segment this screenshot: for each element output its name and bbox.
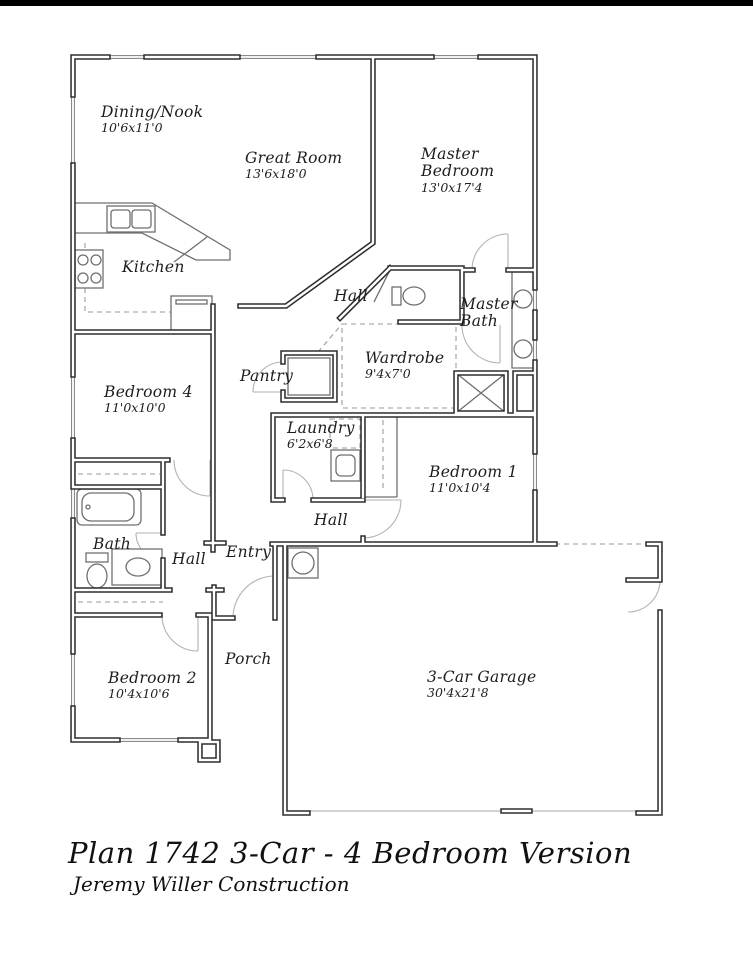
room-label-bedroom4: Bedroom 4 11'0x10'0 bbox=[104, 384, 193, 415]
garage-side-door-arc bbox=[628, 580, 660, 612]
builder-name: Jeremy Willer Construction bbox=[73, 872, 350, 896]
pantry-shelves bbox=[288, 358, 330, 395]
thin-detail-lines bbox=[73, 203, 535, 497]
water-heater bbox=[288, 548, 318, 578]
bedroom1-closet-lines bbox=[363, 415, 397, 497]
room-label-porch: Porch bbox=[225, 651, 272, 668]
room-label-bath: Bath bbox=[93, 536, 131, 553]
floor-plan-drawing bbox=[0, 0, 753, 978]
master-bedroom-door-arc bbox=[472, 234, 508, 270]
laundry-door-arc bbox=[283, 470, 313, 500]
stove bbox=[75, 250, 103, 288]
dishwasher-counter bbox=[171, 296, 212, 332]
bathtub bbox=[77, 489, 141, 525]
shower-x-mark bbox=[456, 373, 506, 413]
room-label-hall-middle: Hall bbox=[172, 551, 206, 568]
room-label-great-room: Great Room 13'6x18'0 bbox=[245, 150, 342, 181]
bedroom4-door-arc bbox=[174, 460, 210, 496]
front-door-arc bbox=[233, 576, 275, 618]
room-label-garage: 3-Car Garage 30'4x21'8 bbox=[427, 669, 537, 700]
bedroom1-door-arc bbox=[363, 500, 401, 538]
room-label-entry: Entry bbox=[226, 544, 271, 561]
floor-plan-page: Dining/Nook 10'6x11'0 Great Room 13'6x18… bbox=[0, 0, 753, 978]
room-label-laundry: Laundry 6'2x6'8 bbox=[287, 420, 355, 451]
room-label-pantry: Pantry bbox=[240, 368, 293, 385]
room-label-bedroom1: Bedroom 1 11'0x10'4 bbox=[429, 464, 518, 495]
kitchen-sink bbox=[107, 206, 155, 232]
bedroom2-door-arc bbox=[162, 615, 198, 651]
room-label-master-bath: Master Bath bbox=[460, 296, 526, 331]
room-label-dining: Dining/Nook 10'6x11'0 bbox=[101, 104, 203, 135]
room-label-hall-upper: Hall bbox=[334, 288, 368, 305]
bath-toilet bbox=[86, 553, 108, 588]
wc-toilet bbox=[392, 287, 425, 305]
room-label-kitchen: Kitchen bbox=[122, 259, 185, 276]
bath-vanity-sink bbox=[112, 549, 162, 585]
room-label-wardrobe: Wardrobe 9'4x7'0 bbox=[365, 350, 444, 381]
room-label-hall-lower: Hall bbox=[314, 512, 348, 529]
room-label-bedroom2: Bedroom 2 10'4x10'6 bbox=[108, 670, 197, 701]
plan-title: Plan 1742 3-Car - 4 Bedroom Version bbox=[68, 836, 632, 870]
room-label-master-bedroom: Master Bedroom 13'0x17'4 bbox=[421, 146, 507, 195]
